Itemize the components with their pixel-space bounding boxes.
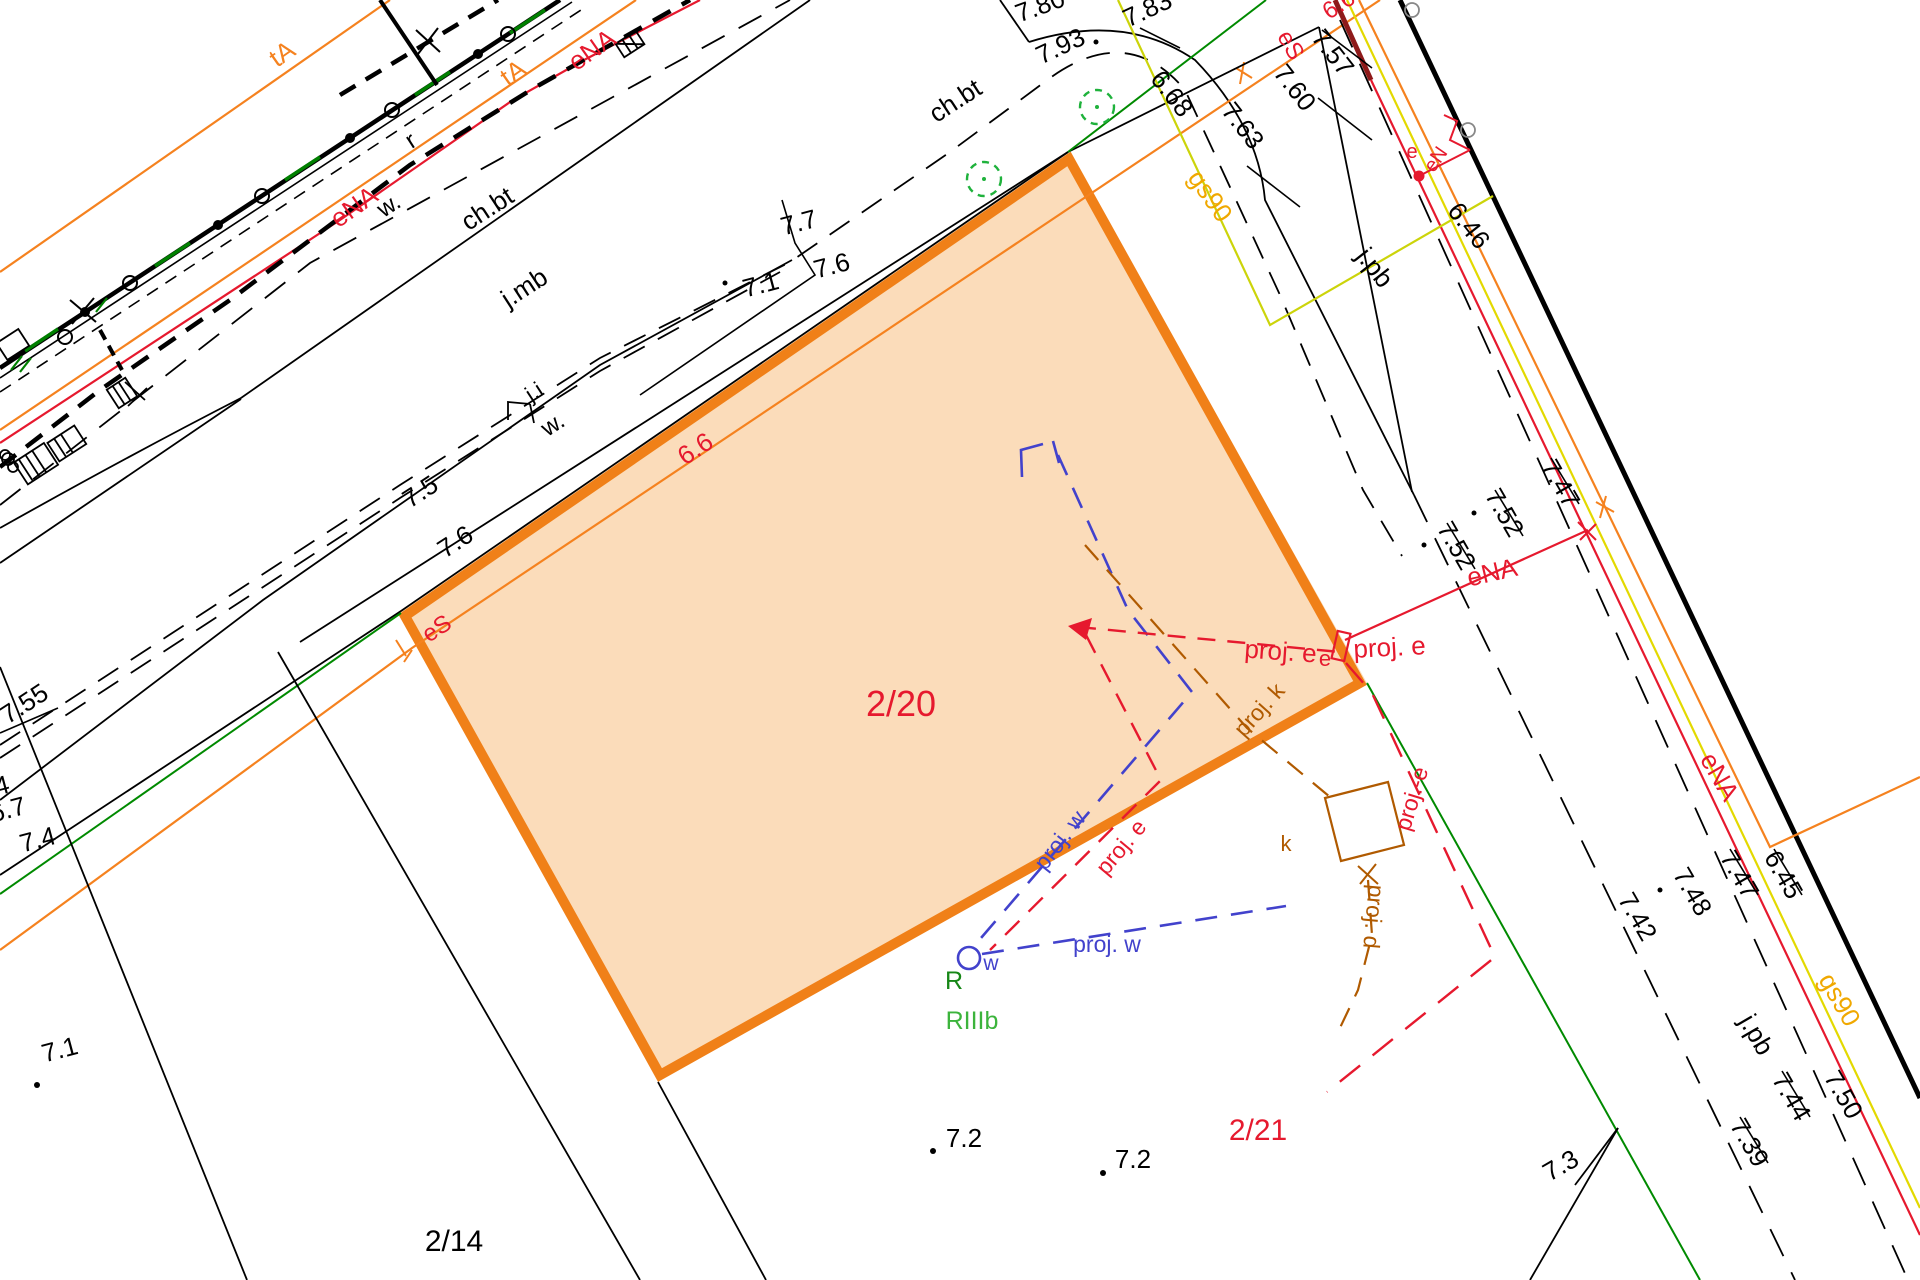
svg-text:2/14: 2/14 (425, 1225, 483, 1258)
svg-text:proj. d: proj. d (1358, 884, 1389, 950)
svg-text:RIIIb: RIIIb (946, 1007, 999, 1035)
svg-text:proj. e: proj. e (1353, 630, 1427, 664)
svg-text:e: e (1319, 646, 1331, 671)
svg-text:7.2: 7.2 (946, 1123, 982, 1153)
svg-text:proj. w: proj. w (1073, 931, 1141, 957)
svg-text:w: w (982, 952, 999, 975)
svg-text:2/20: 2/20 (866, 683, 936, 724)
svg-text:7.2: 7.2 (1115, 1144, 1151, 1174)
svg-text:proj. e: proj. e (1244, 634, 1318, 669)
svg-text:2/21: 2/21 (1229, 1114, 1287, 1147)
svg-text:e: e (1406, 141, 1417, 163)
svg-text:R: R (945, 967, 963, 995)
svg-text:k: k (1281, 831, 1293, 856)
